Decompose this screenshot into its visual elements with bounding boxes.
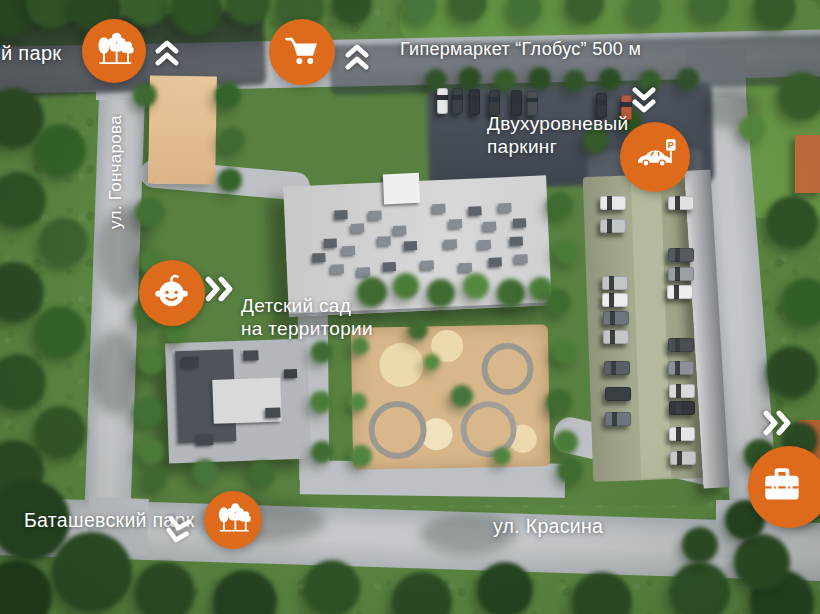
roof-unit bbox=[514, 254, 527, 264]
play-ring bbox=[368, 400, 427, 459]
tree bbox=[34, 306, 86, 358]
label-parking: Двухуровневый паркинг bbox=[487, 112, 628, 158]
tree bbox=[350, 445, 372, 467]
parked-car bbox=[603, 330, 629, 344]
tree bbox=[554, 430, 578, 454]
tree bbox=[599, 68, 621, 90]
parked-car bbox=[669, 427, 695, 441]
tree bbox=[408, 320, 428, 340]
tree bbox=[40, 218, 88, 266]
label-street-goncharova: ул. Гончарова bbox=[106, 97, 126, 247]
poi-hypermarket-badge bbox=[269, 19, 335, 85]
tree bbox=[135, 562, 195, 614]
svg-text:P: P bbox=[668, 140, 674, 150]
label-park-top: й парк bbox=[1, 42, 61, 65]
parked-car bbox=[668, 196, 694, 210]
parked-car bbox=[668, 361, 694, 375]
tree bbox=[564, 70, 586, 92]
parked-car bbox=[668, 267, 694, 281]
tree bbox=[311, 341, 333, 363]
tree bbox=[311, 441, 333, 463]
tree bbox=[557, 457, 583, 483]
tree bbox=[463, 273, 489, 299]
roof-unit bbox=[351, 223, 364, 233]
tree bbox=[332, 0, 372, 24]
tree bbox=[529, 67, 551, 89]
label-street-krasina: ул. Красина bbox=[493, 515, 603, 538]
label-parking-line1: Двухуровневый bbox=[487, 112, 628, 135]
tree bbox=[493, 447, 511, 465]
tree bbox=[739, 115, 765, 141]
parked-car bbox=[437, 88, 448, 114]
tree bbox=[393, 273, 419, 299]
tree bbox=[477, 562, 533, 614]
tree bbox=[52, 532, 132, 612]
tree bbox=[213, 570, 277, 614]
sand-circle bbox=[379, 342, 424, 387]
chevron-up-icon bbox=[342, 43, 372, 71]
tree bbox=[133, 83, 157, 107]
tree-shadow bbox=[90, 330, 142, 415]
roof-unit bbox=[478, 240, 491, 250]
tree bbox=[682, 527, 718, 563]
tree bbox=[494, 69, 516, 91]
tree bbox=[392, 572, 452, 614]
tree bbox=[677, 68, 699, 90]
tree bbox=[215, 82, 241, 108]
label-parking-line2: паркинг bbox=[487, 135, 628, 158]
tree bbox=[34, 124, 86, 176]
parked-car bbox=[668, 338, 694, 352]
shed-orange-roof bbox=[795, 135, 820, 193]
roof-unit bbox=[196, 434, 213, 446]
aerial-masterplan-render: й парк Гипермаркет “Глобус” 500 м Двухур… bbox=[0, 0, 820, 614]
roof-unit bbox=[483, 222, 496, 232]
parked-car bbox=[604, 361, 630, 375]
tree bbox=[304, 560, 360, 614]
tree bbox=[782, 278, 820, 326]
label-hypermarket: Гипермаркет “Глобус” 500 м bbox=[400, 39, 641, 60]
tree bbox=[218, 168, 242, 192]
tree bbox=[0, 262, 44, 322]
tree bbox=[778, 72, 820, 120]
parked-car bbox=[670, 451, 696, 465]
tree bbox=[545, 289, 571, 315]
sports-ground bbox=[148, 75, 217, 184]
tree bbox=[133, 397, 163, 427]
roof-unit bbox=[357, 267, 370, 277]
tree bbox=[349, 393, 367, 411]
briefcase-icon bbox=[757, 460, 807, 514]
tree bbox=[451, 385, 473, 407]
poi-park-badge-top bbox=[82, 19, 146, 83]
roof-unit bbox=[421, 260, 434, 270]
tree bbox=[427, 279, 455, 307]
roof-unit bbox=[265, 408, 280, 419]
roof-unit bbox=[498, 203, 511, 213]
roof-unit bbox=[383, 262, 396, 272]
tree bbox=[734, 534, 790, 590]
parked-car bbox=[469, 89, 480, 115]
building-residential-2 bbox=[165, 339, 311, 464]
tree bbox=[310, 391, 332, 413]
chevron-down-icon bbox=[160, 513, 195, 547]
poi-business-badge bbox=[748, 446, 820, 528]
roof-unit bbox=[342, 246, 355, 256]
chevron-down-icon bbox=[629, 86, 659, 114]
tree bbox=[554, 240, 578, 264]
car-parking-icon: P bbox=[632, 132, 678, 182]
baby-icon bbox=[150, 269, 194, 317]
label-kindergarten: Детский сад на территории bbox=[241, 294, 373, 340]
tree bbox=[143, 466, 167, 490]
tree bbox=[670, 562, 730, 614]
chevron-up-icon bbox=[152, 39, 182, 67]
tree bbox=[553, 340, 577, 364]
trees-icon bbox=[93, 28, 135, 74]
chevron-right-icon bbox=[762, 407, 792, 439]
poi-kindergarten-badge bbox=[139, 260, 205, 326]
parked-car bbox=[452, 88, 463, 114]
shopping-cart-icon bbox=[281, 29, 323, 75]
tree bbox=[138, 349, 164, 375]
roof-unit bbox=[284, 369, 297, 378]
tree bbox=[135, 197, 165, 227]
roof-unit bbox=[459, 263, 472, 273]
roof-unit bbox=[243, 350, 258, 361]
label-kindergarten-line2: на территории bbox=[241, 317, 373, 340]
roof-unit bbox=[404, 241, 417, 251]
parked-car bbox=[600, 196, 626, 210]
roof-unit bbox=[444, 239, 457, 249]
tree bbox=[766, 196, 818, 248]
roof-elevator-shaft bbox=[383, 173, 420, 205]
parked-car bbox=[669, 384, 695, 398]
roof-unit bbox=[324, 239, 337, 249]
tree bbox=[0, 172, 46, 228]
tree bbox=[572, 572, 632, 614]
roof-unit bbox=[449, 219, 462, 229]
tree bbox=[497, 279, 525, 307]
roof-unit bbox=[312, 253, 325, 263]
tree bbox=[138, 439, 164, 465]
roof-unit bbox=[334, 210, 347, 220]
roof-unit bbox=[181, 356, 198, 368]
roof-unit bbox=[489, 257, 502, 267]
roof-unit bbox=[510, 236, 523, 246]
roof-unit bbox=[331, 264, 344, 274]
parked-car bbox=[669, 401, 695, 415]
parked-car bbox=[605, 412, 631, 426]
parked-car bbox=[605, 387, 631, 401]
tree bbox=[424, 354, 440, 370]
parked-car bbox=[602, 276, 628, 290]
poi-parking-badge: P bbox=[620, 122, 690, 192]
roof-unit bbox=[468, 206, 481, 216]
tree bbox=[249, 461, 275, 487]
roof-unit bbox=[393, 225, 406, 235]
roof-unit bbox=[378, 236, 391, 246]
tree bbox=[547, 192, 573, 218]
poi-park-badge-bottom bbox=[204, 491, 262, 549]
tree bbox=[766, 346, 818, 398]
parked-car bbox=[602, 293, 628, 307]
label-kindergarten-line1: Детский сад bbox=[241, 294, 373, 317]
play-ring bbox=[481, 343, 534, 396]
roof-unit bbox=[513, 218, 526, 228]
trees-icon bbox=[214, 499, 252, 541]
tree bbox=[546, 389, 572, 415]
tree bbox=[459, 67, 481, 89]
tree bbox=[0, 354, 46, 410]
roof-unit bbox=[432, 204, 445, 214]
parked-car bbox=[667, 285, 693, 299]
parked-car bbox=[603, 311, 629, 325]
parked-car bbox=[668, 248, 694, 262]
roof-unit bbox=[368, 211, 381, 221]
tree bbox=[219, 127, 245, 153]
chevron-right-icon bbox=[204, 273, 234, 305]
tree bbox=[192, 459, 218, 485]
tree bbox=[34, 406, 86, 458]
parked-car bbox=[600, 219, 626, 233]
tree bbox=[0, 560, 52, 614]
